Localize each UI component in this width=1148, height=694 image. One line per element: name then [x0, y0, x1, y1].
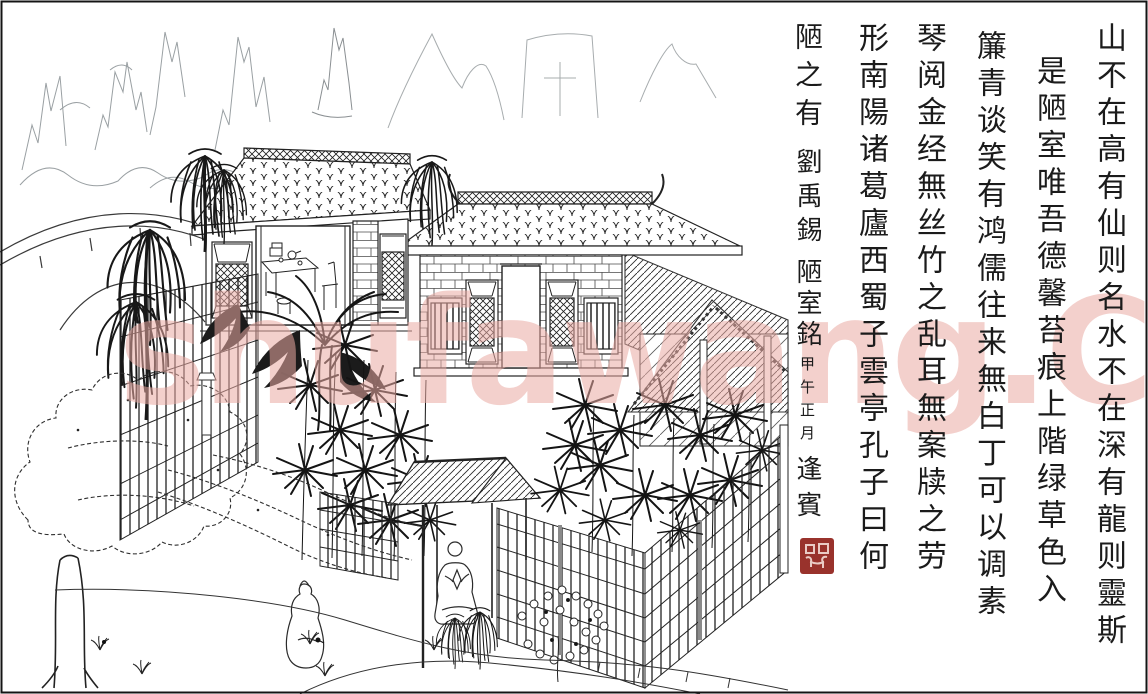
signature-date: 甲午正月 — [786, 356, 828, 448]
slat-window-right — [584, 298, 618, 354]
slat-window-left — [428, 298, 462, 354]
poem-column-4: 琴阅金经無丝竹之乱耳無案牍之劳 — [906, 22, 950, 577]
poem-column-6: 陋之有 — [786, 22, 828, 136]
poem-column-2: 是陋室唯吾德馨苔痕上階绿草色入 — [1026, 55, 1070, 610]
right-house-door — [500, 264, 542, 368]
praying-figure — [435, 542, 478, 624]
signature-calligrapher: 逢賓 — [786, 455, 828, 527]
lattice-window-left — [466, 280, 498, 364]
signature-title: 陋室銘 — [786, 258, 828, 351]
grass-tufts — [91, 630, 443, 676]
signature-author: 劉禹錫 — [786, 148, 828, 250]
artist-seal — [799, 537, 835, 575]
courtyard-fence — [320, 425, 788, 688]
robed-figure — [286, 581, 323, 668]
study-window-right — [380, 234, 406, 318]
lattice-window-right — [546, 280, 578, 364]
poem-column-3: 簾青谈笑有鸿儒往来無白丁可以调素 — [966, 30, 1010, 622]
poem-column-1: 山不在高有仙则名水不在深有龍则靈斯 — [1086, 22, 1130, 651]
artwork-page: shufawang.CN 山不在高有仙则名水不在深有龍则靈斯 是陋室唯吾德馨苔痕… — [0, 0, 1148, 694]
poem-column-5: 形南陽诸葛廬西蜀子雲亭孔子曰何 — [848, 22, 892, 577]
